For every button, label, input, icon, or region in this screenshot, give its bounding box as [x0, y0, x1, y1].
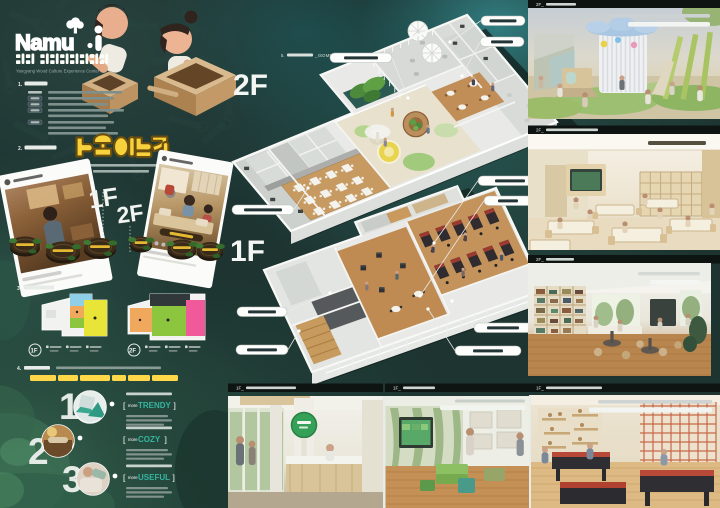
svg-text:TRENDY: TRENDY — [138, 401, 172, 410]
svg-text:1F_: 1F_ — [536, 386, 544, 391]
svg-text:3.: 3. — [17, 286, 22, 292]
svg-text:]: ] — [173, 473, 175, 483]
svg-text:2F_: 2F_ — [536, 128, 544, 133]
svg-text:2F: 2F — [115, 199, 145, 228]
svg-text:2F: 2F — [129, 349, 136, 355]
svg-text:1.: 1. — [18, 82, 23, 88]
svg-text:4.: 4. — [17, 366, 22, 372]
svg-text:USEFUL: USEFUL — [138, 473, 170, 482]
svg-text:]: ] — [174, 401, 176, 411]
svg-text:1F_: 1F_ — [236, 386, 244, 391]
svg-text:1F: 1F — [87, 183, 120, 215]
svg-text:5.: 5. — [281, 53, 285, 58]
svg-text:1F: 1F — [230, 235, 265, 268]
svg-text:more: more — [128, 475, 138, 480]
svg-text:]: ] — [165, 435, 167, 445]
svg-text:2F: 2F — [233, 69, 268, 102]
svg-text:2F_: 2F_ — [536, 257, 544, 262]
svg-text:more: more — [128, 437, 138, 442]
svg-text:1F_: 1F_ — [393, 386, 401, 391]
svg-text:2.: 2. — [18, 146, 23, 152]
svg-text:1F: 1F — [31, 349, 38, 355]
svg-text:more: more — [128, 403, 138, 408]
svg-text:Yangyang Wood Culture Experien: Yangyang Wood Culture Experience Center — [16, 69, 100, 74]
svg-text:2F_: 2F_ — [536, 2, 544, 7]
svg-text:Namu: Namu — [15, 30, 74, 55]
svg-text:COZY: COZY — [138, 435, 161, 444]
